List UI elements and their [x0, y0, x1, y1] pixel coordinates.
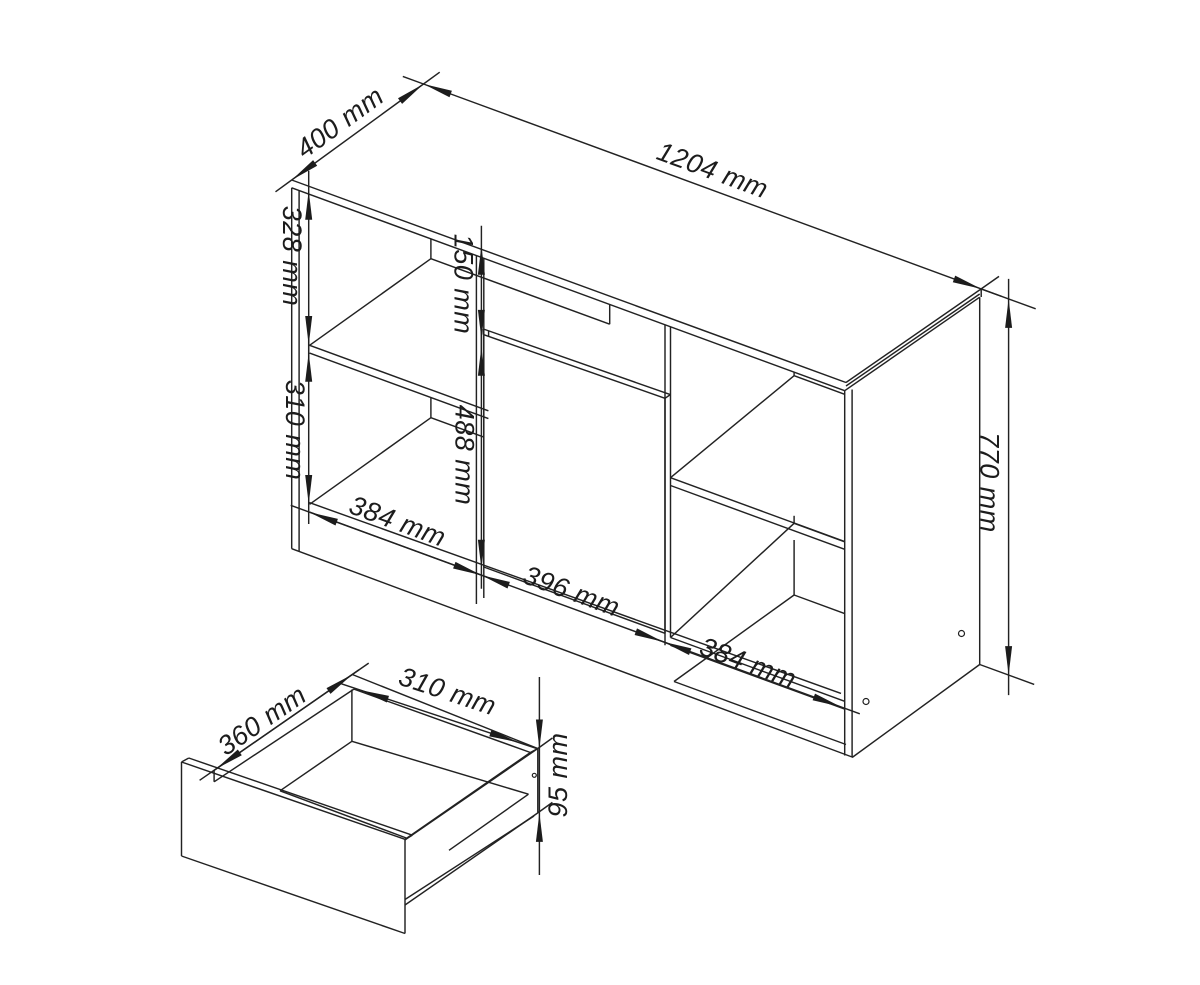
svg-text:488 mm: 488 mm	[449, 405, 479, 506]
svg-text:770 mm: 770 mm	[974, 432, 1004, 533]
svg-text:150 mm: 150 mm	[448, 234, 478, 335]
svg-text:328 mm: 328 mm	[277, 206, 307, 307]
svg-text:95 mm: 95 mm	[543, 732, 573, 817]
svg-text:310 mm: 310 mm	[280, 380, 310, 481]
